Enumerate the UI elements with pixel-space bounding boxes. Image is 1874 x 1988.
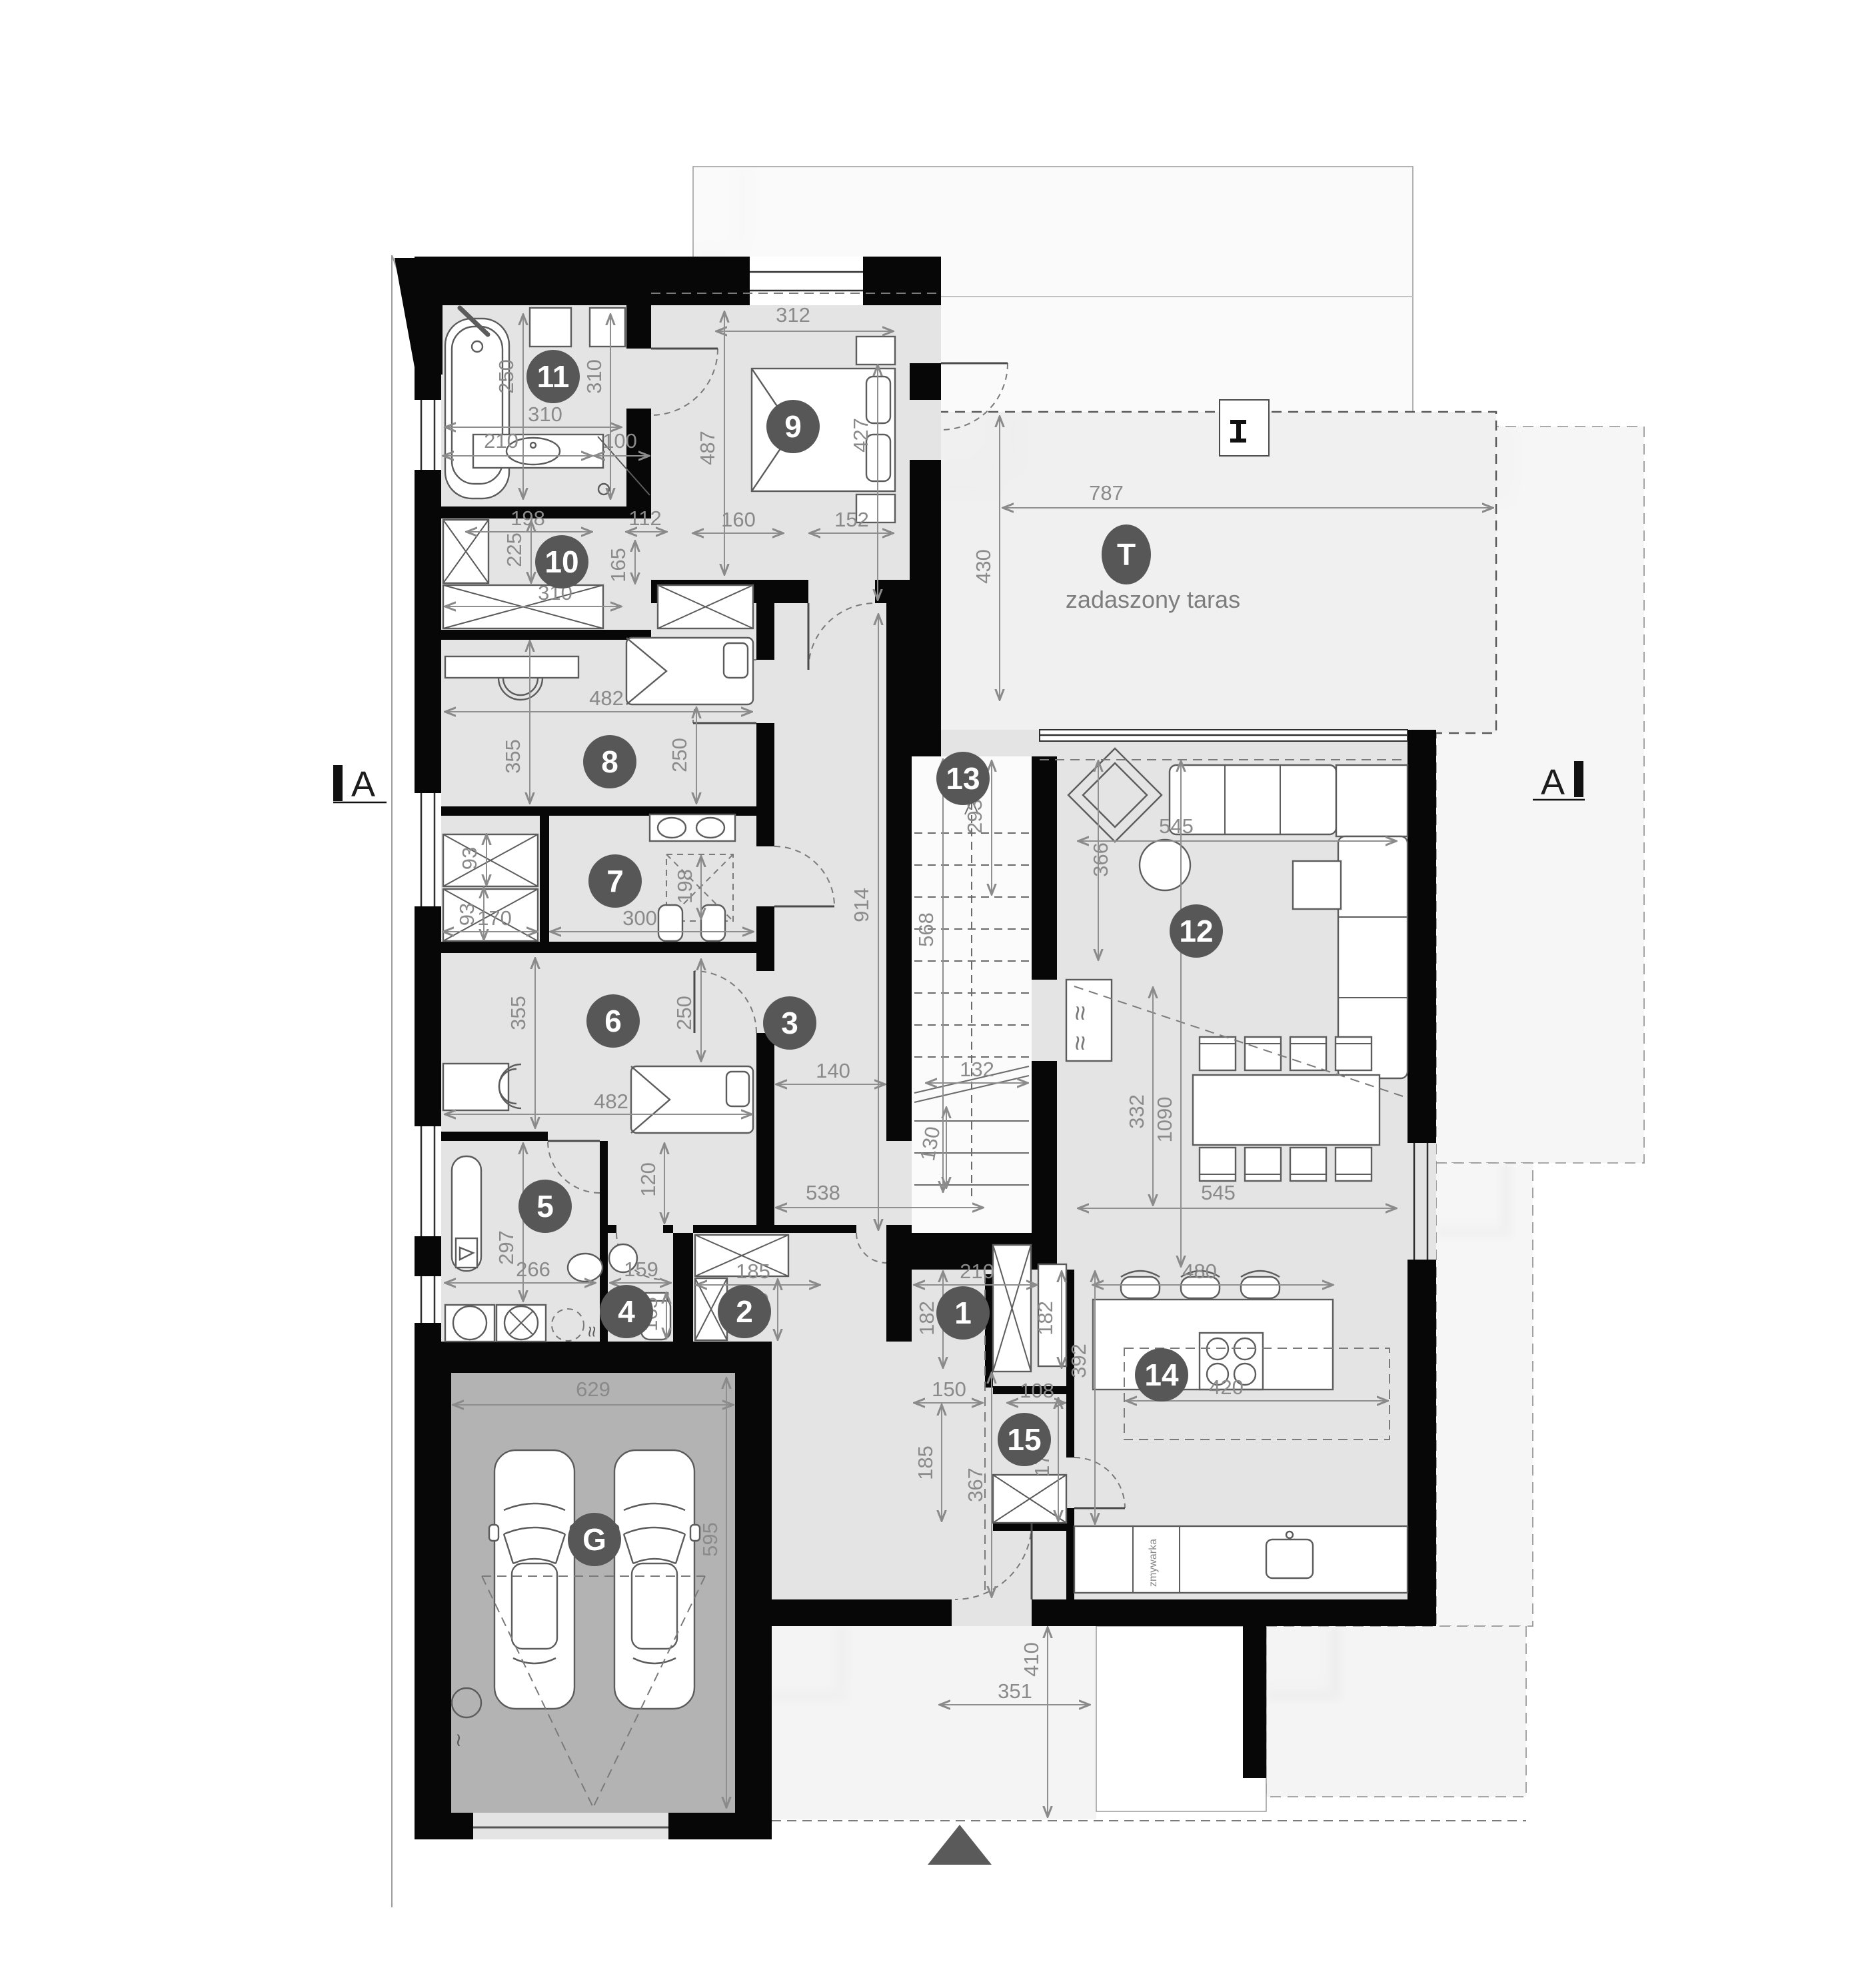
ironing-board: [452, 1156, 481, 1271]
room-badge-G: G: [568, 1513, 621, 1566]
room-badge-10: 10: [535, 535, 588, 588]
dim-label: 355: [506, 996, 530, 1030]
dim-label: 225: [502, 532, 526, 567]
section-letter: A: [1541, 762, 1565, 802]
svg-text:6: 6: [604, 1004, 622, 1038]
svg-text:4: 4: [618, 1294, 635, 1329]
terrace: [938, 400, 1496, 733]
window-left-1: [421, 400, 435, 470]
porch-wall: [1243, 1626, 1266, 1778]
kitchen-counter: [1074, 1526, 1407, 1593]
dim-label: 185: [736, 1260, 770, 1283]
dim-label: 250: [494, 359, 518, 394]
svg-text:5: 5: [536, 1189, 554, 1224]
window-left-3: [421, 1126, 435, 1236]
svg-text:13: 13: [946, 761, 980, 796]
dim-label: 132: [960, 1058, 994, 1081]
dim-label: 568: [914, 912, 938, 947]
dim-label: 266: [516, 1258, 550, 1281]
dim-label: 198: [673, 869, 696, 904]
single-bed: [626, 638, 753, 704]
svg-text:1: 1: [954, 1296, 972, 1330]
bathtub-symbol: [445, 308, 509, 498]
section-letter: A: [351, 764, 375, 804]
dim-label: 312: [776, 303, 810, 327]
dim-label: 185: [914, 1446, 937, 1480]
car-symbol: [489, 1450, 580, 1709]
dim-label: 545: [1159, 814, 1194, 838]
svg-text:≈: ≈: [1066, 1036, 1095, 1050]
coffee-table: [1293, 861, 1341, 909]
room-badge-6: 6: [586, 994, 640, 1048]
bath-cabinet: [530, 308, 571, 347]
dim-label: 210: [484, 429, 518, 453]
dim-label: 545: [1201, 1181, 1236, 1204]
room-badge-15: 15: [998, 1413, 1051, 1466]
wardrobe-xbox: [443, 520, 488, 583]
section-marker-right: A: [1533, 761, 1585, 802]
room-badge-4: 4: [600, 1285, 653, 1338]
room-badge-7: 7: [588, 854, 642, 908]
svg-text:3: 3: [781, 1006, 798, 1040]
dim-label: 410: [1020, 1642, 1043, 1677]
svg-text:14: 14: [1144, 1358, 1179, 1392]
dim-label: 538: [806, 1181, 840, 1204]
dim-label: 420: [1209, 1376, 1244, 1399]
dim-label: 367: [964, 1468, 987, 1502]
terrace-label: zadaszony taras: [1066, 586, 1240, 613]
toilet-symbol: [658, 905, 682, 941]
dim-label: 310: [582, 359, 606, 394]
window-left-2: [421, 793, 435, 906]
dim-label: 629: [576, 1378, 610, 1401]
svg-text:7: 7: [606, 864, 624, 898]
section-marker-left: A: [333, 764, 387, 804]
car-symbol: [609, 1450, 700, 1709]
room-badge-T: T: [1102, 524, 1151, 584]
svg-text:10: 10: [544, 544, 578, 579]
svg-text:12: 12: [1179, 914, 1213, 948]
dim-label: 100: [602, 429, 637, 453]
dim-label: 787: [1089, 481, 1124, 504]
dim-label: 152: [834, 508, 869, 531]
terrace-column-recess: [1220, 400, 1269, 456]
single-bed: [631, 1066, 753, 1133]
dim-label: 427: [849, 418, 872, 453]
dim-label: 120: [636, 1162, 660, 1197]
fireplace: ≈ ≈: [1066, 980, 1112, 1061]
north-entrance-arrow-icon: [928, 1825, 992, 1865]
dim-label: 250: [668, 738, 691, 772]
room-badge-13: 13: [936, 752, 990, 805]
room-badge-9: 9: [766, 400, 820, 453]
dim-label: 198: [510, 506, 545, 530]
dishwasher-label: zmywarka: [1148, 1539, 1159, 1587]
dim-label: 1090: [1153, 1097, 1176, 1143]
dim-label: 310: [528, 403, 562, 426]
dim-label: 165: [606, 548, 630, 582]
dim-label: 297: [494, 1230, 518, 1265]
bidet-symbol: [701, 905, 725, 941]
dim-label: 366: [1089, 842, 1112, 877]
room-badge-14: 14: [1135, 1348, 1188, 1402]
room-badge-8: 8: [583, 735, 636, 788]
svg-text:T: T: [1117, 537, 1136, 572]
dim-label: 160: [721, 508, 756, 531]
dim-label: 182: [1034, 1301, 1057, 1336]
glazing-living-terrace: [1040, 730, 1407, 741]
dim-label: 150: [932, 1378, 966, 1401]
dryer: [496, 1305, 546, 1342]
dim-label: 355: [501, 739, 524, 774]
room-badge-3: 3: [763, 996, 816, 1050]
dim-label: 108: [1020, 1379, 1054, 1402]
window-top: [750, 257, 863, 305]
dim-label: 392: [1067, 1344, 1090, 1378]
svg-text:15: 15: [1007, 1422, 1041, 1457]
washer: [445, 1305, 494, 1342]
dim-label: 93: [455, 903, 478, 926]
double-washbasin: [650, 814, 735, 841]
dim-label: 170: [477, 906, 512, 930]
wardrobe-xbox: [993, 1475, 1066, 1523]
svg-text:≈: ≈: [1066, 1006, 1095, 1020]
dim-label: 430: [972, 549, 995, 584]
bath-cabinet: [590, 308, 625, 347]
room-badge-12: 12: [1170, 904, 1223, 958]
dim-label: 351: [998, 1679, 1032, 1703]
entry-porch: [1096, 1626, 1266, 1811]
dim-label: 482: [589, 686, 624, 710]
floor-plan-drawing: ≈ ≈: [0, 0, 1874, 1988]
dim-label: 487: [696, 431, 719, 465]
dim-label: 914: [850, 888, 873, 922]
svg-text:8: 8: [601, 744, 618, 779]
wardrobe-xbox: [993, 1245, 1031, 1372]
room-badge-1: 1: [936, 1286, 990, 1340]
room-badge-11: 11: [526, 350, 580, 403]
dim-label: 300: [622, 906, 657, 930]
drain-icon: ≀: [455, 1729, 463, 1750]
dim-label: 112: [628, 506, 661, 530]
wardrobe-xbox: [658, 585, 753, 628]
round-table: [1140, 840, 1190, 890]
svg-text:2: 2: [736, 1294, 753, 1329]
window-left-4: [421, 1276, 435, 1323]
dim-label: 182: [915, 1301, 938, 1336]
dim-label: 210: [960, 1260, 994, 1283]
dim-label: 480: [1182, 1260, 1217, 1283]
svg-text:9: 9: [784, 409, 802, 444]
room-badge-5: 5: [518, 1180, 572, 1233]
floor-plan-page: ≈ ≈: [0, 0, 1874, 1988]
svg-text:11: 11: [537, 359, 570, 394]
dim-label: 250: [672, 996, 696, 1030]
dim-label: 332: [1125, 1094, 1148, 1129]
utility-sink: [568, 1254, 602, 1282]
boiler-icon: ≈: [581, 1326, 603, 1337]
dim-label: 93: [458, 847, 481, 870]
dim-label: 595: [698, 1522, 722, 1557]
dim-label: 140: [816, 1059, 850, 1082]
dim-label: 482: [594, 1090, 628, 1113]
svg-text:G: G: [582, 1522, 606, 1557]
room-badge-2: 2: [718, 1285, 771, 1338]
dim-label: 159: [624, 1258, 658, 1281]
